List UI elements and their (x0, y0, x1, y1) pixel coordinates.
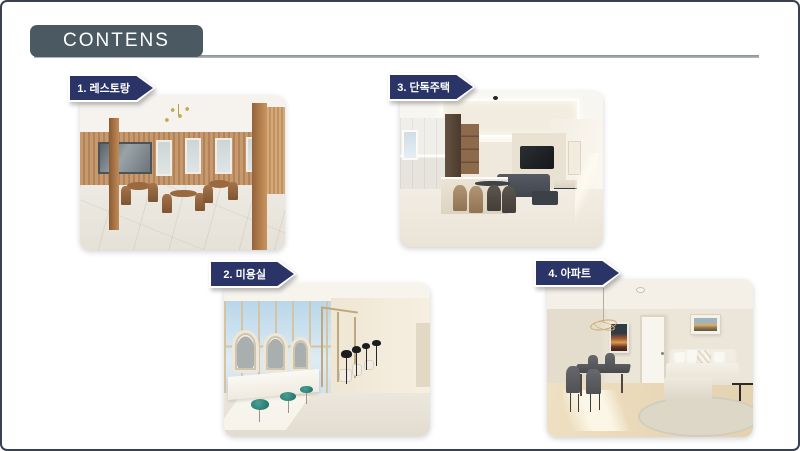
window (215, 138, 231, 174)
window (185, 138, 201, 174)
banner-beauty-salon: 2. 미용실 (209, 260, 296, 288)
stool (251, 399, 270, 410)
wood-column (252, 103, 266, 250)
title-box: CONTENS (30, 25, 203, 57)
table (170, 190, 197, 198)
hair-dryer-head (372, 340, 380, 346)
wood-wall-right (267, 107, 285, 194)
banner-detached-house: 3. 단독주택 (388, 73, 475, 101)
chair (203, 185, 213, 204)
sun-streak (575, 153, 599, 223)
wood-column (109, 118, 119, 230)
banner-apartment: 4. 아파트 (534, 259, 621, 287)
dining-chair (566, 366, 580, 393)
dryer-stand (346, 356, 347, 384)
detached-house-image (400, 91, 603, 247)
ottoman (532, 191, 558, 205)
chair-leg (570, 393, 571, 412)
chair-leg (599, 393, 600, 410)
hair-dryer-head (341, 350, 351, 358)
smoke-detector (636, 287, 645, 293)
vanity-mirror (232, 330, 259, 373)
banner-restaurant: 1. 레스토랑 (68, 74, 155, 102)
coffee-table-leg (739, 383, 741, 400)
dryer-stand (366, 349, 367, 370)
stool (280, 392, 296, 401)
coffee-table-top (732, 383, 753, 385)
chair-leg (578, 394, 579, 411)
chandelier (164, 104, 193, 124)
pendant-cord (603, 288, 604, 321)
stool (469, 186, 483, 213)
hair-dryer-head (362, 343, 370, 349)
apartment-image (547, 279, 753, 437)
slide: CONTENS (0, 0, 800, 451)
vanity-mirror (290, 337, 311, 372)
window (156, 140, 172, 176)
chair (228, 182, 238, 201)
rug (638, 396, 753, 437)
wood-shelf (461, 124, 479, 174)
table-leg (580, 374, 582, 396)
dining-chair (605, 353, 615, 369)
banner-label-restaurant: 1. 레스토랑 (68, 74, 139, 102)
stool-leg (288, 399, 289, 413)
chair (148, 183, 158, 202)
restaurant-image (80, 95, 285, 250)
banner-label-beauty-salon: 2. 미용실 (209, 260, 280, 288)
sofa-chaise (664, 377, 711, 401)
banner-label-apartment: 4. 아파트 (534, 259, 605, 287)
vanity-mirror (263, 333, 288, 373)
chair (162, 194, 172, 213)
dining-table (575, 364, 631, 373)
hair-dryer-head (352, 346, 361, 353)
stool-leg (306, 392, 307, 404)
styling-chair (352, 364, 362, 376)
tall-cabinet (445, 114, 461, 183)
partition-frame (321, 307, 323, 387)
artwork-landscape (691, 315, 720, 334)
page-title: CONTENS (63, 30, 170, 52)
dryer-stand (376, 346, 377, 366)
chair (502, 186, 516, 213)
banner-label-detached-house: 3. 단독주택 (388, 73, 459, 101)
stool (453, 185, 467, 212)
dining-chair (586, 369, 600, 394)
console-bench (554, 180, 576, 189)
chair (121, 186, 131, 205)
tv (520, 146, 555, 169)
chair (487, 185, 501, 212)
table-leg (621, 374, 623, 393)
chair-leg (590, 394, 591, 411)
beauty-salon-image (224, 283, 430, 436)
far-wall (416, 323, 430, 387)
stool (300, 386, 312, 394)
menu-board (98, 142, 151, 175)
kitchen-window (402, 130, 418, 160)
dryer-stand (356, 352, 357, 376)
